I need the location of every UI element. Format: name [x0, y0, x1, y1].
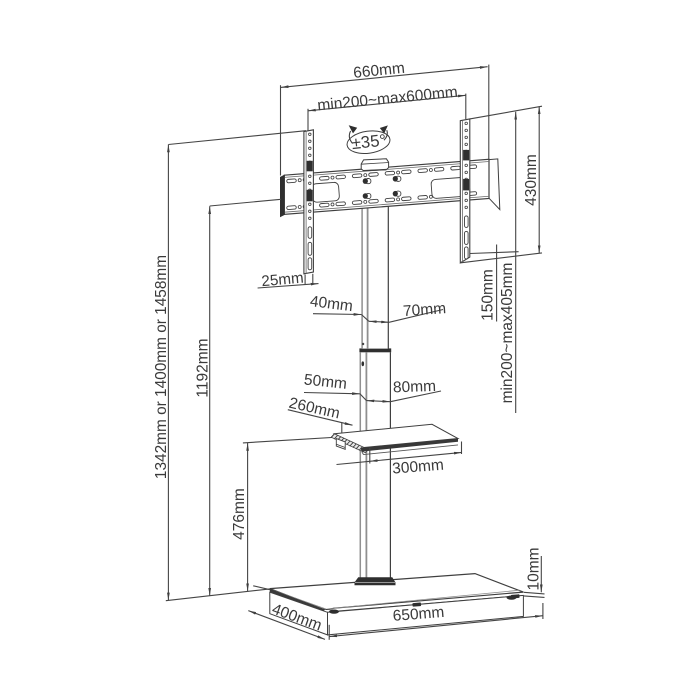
svg-text:±35°: ±35°: [351, 131, 387, 154]
svg-text:150mm: 150mm: [480, 269, 497, 321]
svg-text:70mm: 70mm: [402, 300, 446, 320]
svg-text:1342mm or 1400mm or 1458mm: 1342mm or 1400mm or 1458mm: [153, 255, 170, 479]
svg-text:25mm: 25mm: [261, 270, 305, 291]
svg-text:476mm: 476mm: [231, 488, 248, 540]
svg-text:430mm: 430mm: [523, 154, 540, 206]
svg-text:1192mm: 1192mm: [195, 338, 212, 397]
svg-text:10mm: 10mm: [526, 547, 543, 590]
svg-text:80mm: 80mm: [393, 378, 437, 396]
svg-text:min200~max405mm: min200~max405mm: [499, 263, 516, 404]
